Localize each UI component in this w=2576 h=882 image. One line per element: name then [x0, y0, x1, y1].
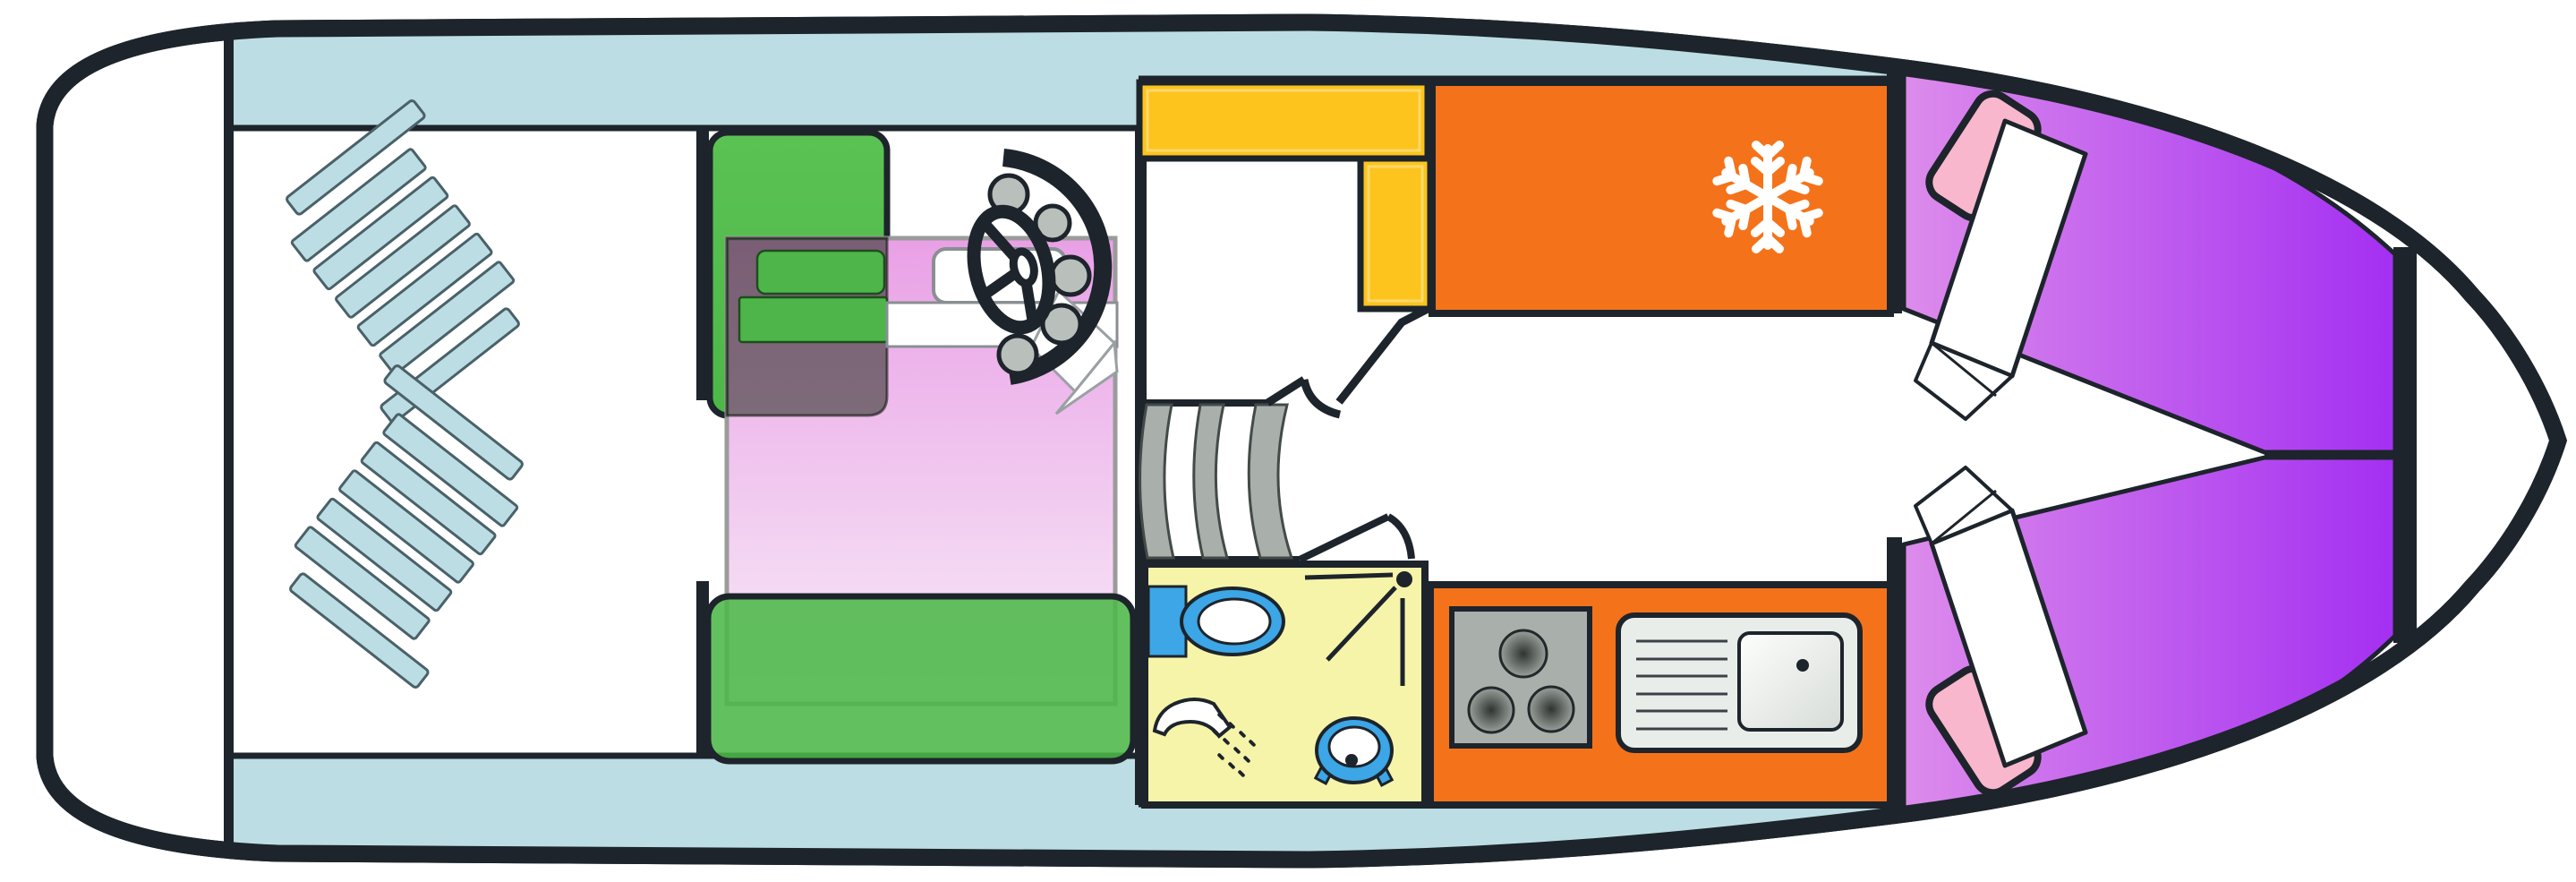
stove-burner [1469, 688, 1514, 732]
instrument-gauge [1052, 257, 1089, 295]
washbasin-bowl [1198, 599, 1270, 644]
transom-wall [224, 25, 234, 858]
door-hinge-dot [1396, 571, 1412, 587]
berth-footboard [2393, 247, 2417, 643]
toilet-drain-dot [1345, 754, 1358, 766]
seat-cushion-2 [739, 297, 887, 342]
stove-burner [1500, 630, 1547, 677]
instrument-gauge [999, 336, 1036, 373]
toilet-icon [1316, 718, 1392, 785]
overhead-cabinet [1139, 82, 1428, 158]
sink-basin [1739, 633, 1842, 730]
boat-floor-plan [0, 0, 2576, 882]
seat-cushion-1 [757, 251, 884, 294]
door-swing-line [1305, 575, 1393, 578]
saloon-bench [708, 596, 1133, 761]
refrigerator [1432, 82, 1890, 313]
sink-drain-dot [1796, 659, 1809, 672]
stove-burner [1529, 687, 1574, 732]
boat-floor-plan-stage [0, 0, 2576, 882]
bow-bulkhead-lower [1887, 537, 1902, 819]
side-cabinet [1361, 158, 1430, 309]
